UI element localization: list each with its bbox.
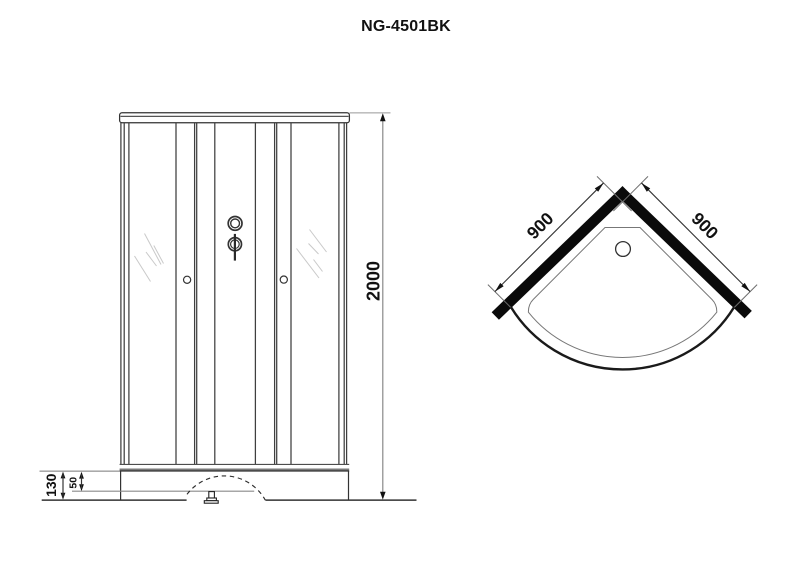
svg-text:NG-4501BK: NG-4501BK (361, 18, 451, 35)
svg-text:130: 130 (43, 473, 59, 497)
svg-text:2000: 2000 (363, 261, 383, 301)
svg-text:900: 900 (688, 208, 723, 243)
svg-text:900: 900 (523, 208, 558, 243)
svg-text:50: 50 (68, 477, 80, 489)
